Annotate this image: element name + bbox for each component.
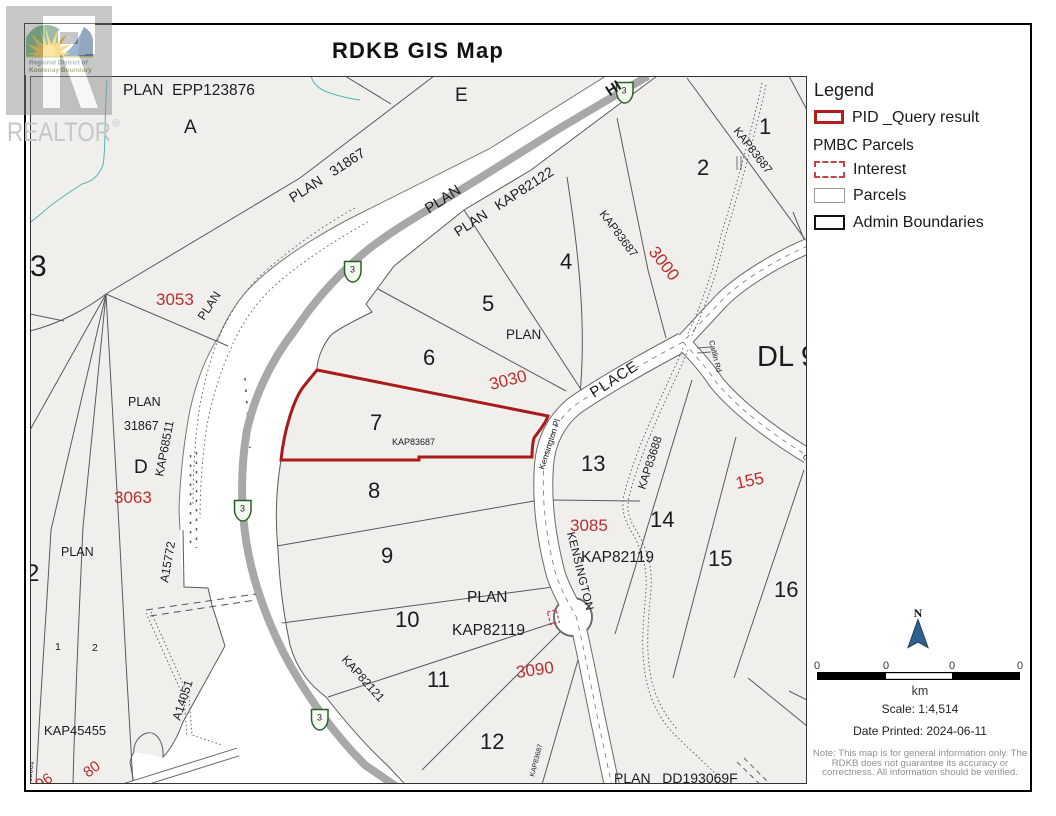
- svg-text:PLAN EPP123876: PLAN EPP123876: [123, 82, 255, 99]
- svg-text:PLAN: PLAN: [506, 327, 541, 342]
- svg-text:D: D: [134, 457, 148, 478]
- svg-text:A: A: [184, 117, 197, 138]
- svg-text:N: N: [914, 606, 923, 620]
- svg-text:PLAN: PLAN: [467, 589, 508, 606]
- svg-text:1: 1: [759, 114, 771, 139]
- svg-text:2: 2: [92, 642, 98, 654]
- svg-text:0: 0: [949, 660, 955, 672]
- svg-text:8: 8: [368, 478, 380, 503]
- svg-text:11: 11: [427, 667, 450, 692]
- svg-text:DL 9: DL 9: [757, 341, 807, 373]
- svg-text:3: 3: [317, 713, 322, 723]
- svg-text:14: 14: [650, 507, 674, 532]
- svg-text:0: 0: [883, 660, 889, 672]
- svg-text:3085: 3085: [570, 516, 608, 535]
- svg-text:KAP83687: KAP83687: [392, 437, 435, 447]
- svg-text:15: 15: [708, 546, 732, 571]
- svg-text:0: 0: [814, 660, 820, 672]
- svg-text:31867: 31867: [124, 419, 159, 433]
- svg-text:KAP82119: KAP82119: [452, 622, 525, 639]
- svg-text:6: 6: [423, 345, 435, 370]
- svg-text:10: 10: [395, 607, 419, 632]
- svg-text:PLAN: PLAN: [128, 395, 161, 409]
- svg-text:13: 13: [581, 451, 605, 476]
- svg-text:3053: 3053: [156, 290, 194, 309]
- svg-text:KAP82119: KAP82119: [581, 549, 654, 566]
- svg-text:16: 16: [774, 577, 798, 602]
- svg-text:2: 2: [697, 155, 709, 180]
- svg-text:7: 7: [370, 410, 382, 435]
- svg-text:REALTOR: REALTOR: [7, 117, 111, 147]
- svg-text:3063: 3063: [114, 488, 152, 507]
- svg-text:3: 3: [350, 265, 355, 275]
- svg-text:2: 2: [30, 560, 39, 587]
- svg-text:3: 3: [240, 504, 245, 514]
- svg-text:9: 9: [381, 543, 393, 568]
- svg-text:4: 4: [560, 249, 572, 274]
- svg-text:5: 5: [482, 291, 494, 316]
- svg-text:PLAN: PLAN: [61, 545, 94, 559]
- svg-text:3: 3: [30, 250, 47, 283]
- svg-text:PLAN DD193069F: PLAN DD193069F: [614, 770, 738, 784]
- svg-text:12: 12: [480, 729, 504, 754]
- svg-text:1: 1: [55, 641, 61, 653]
- svg-text:E: E: [455, 85, 468, 106]
- svg-text:0: 0: [1017, 660, 1023, 672]
- svg-text:®: ®: [112, 118, 120, 130]
- svg-text:KAP45455: KAP45455: [44, 723, 106, 738]
